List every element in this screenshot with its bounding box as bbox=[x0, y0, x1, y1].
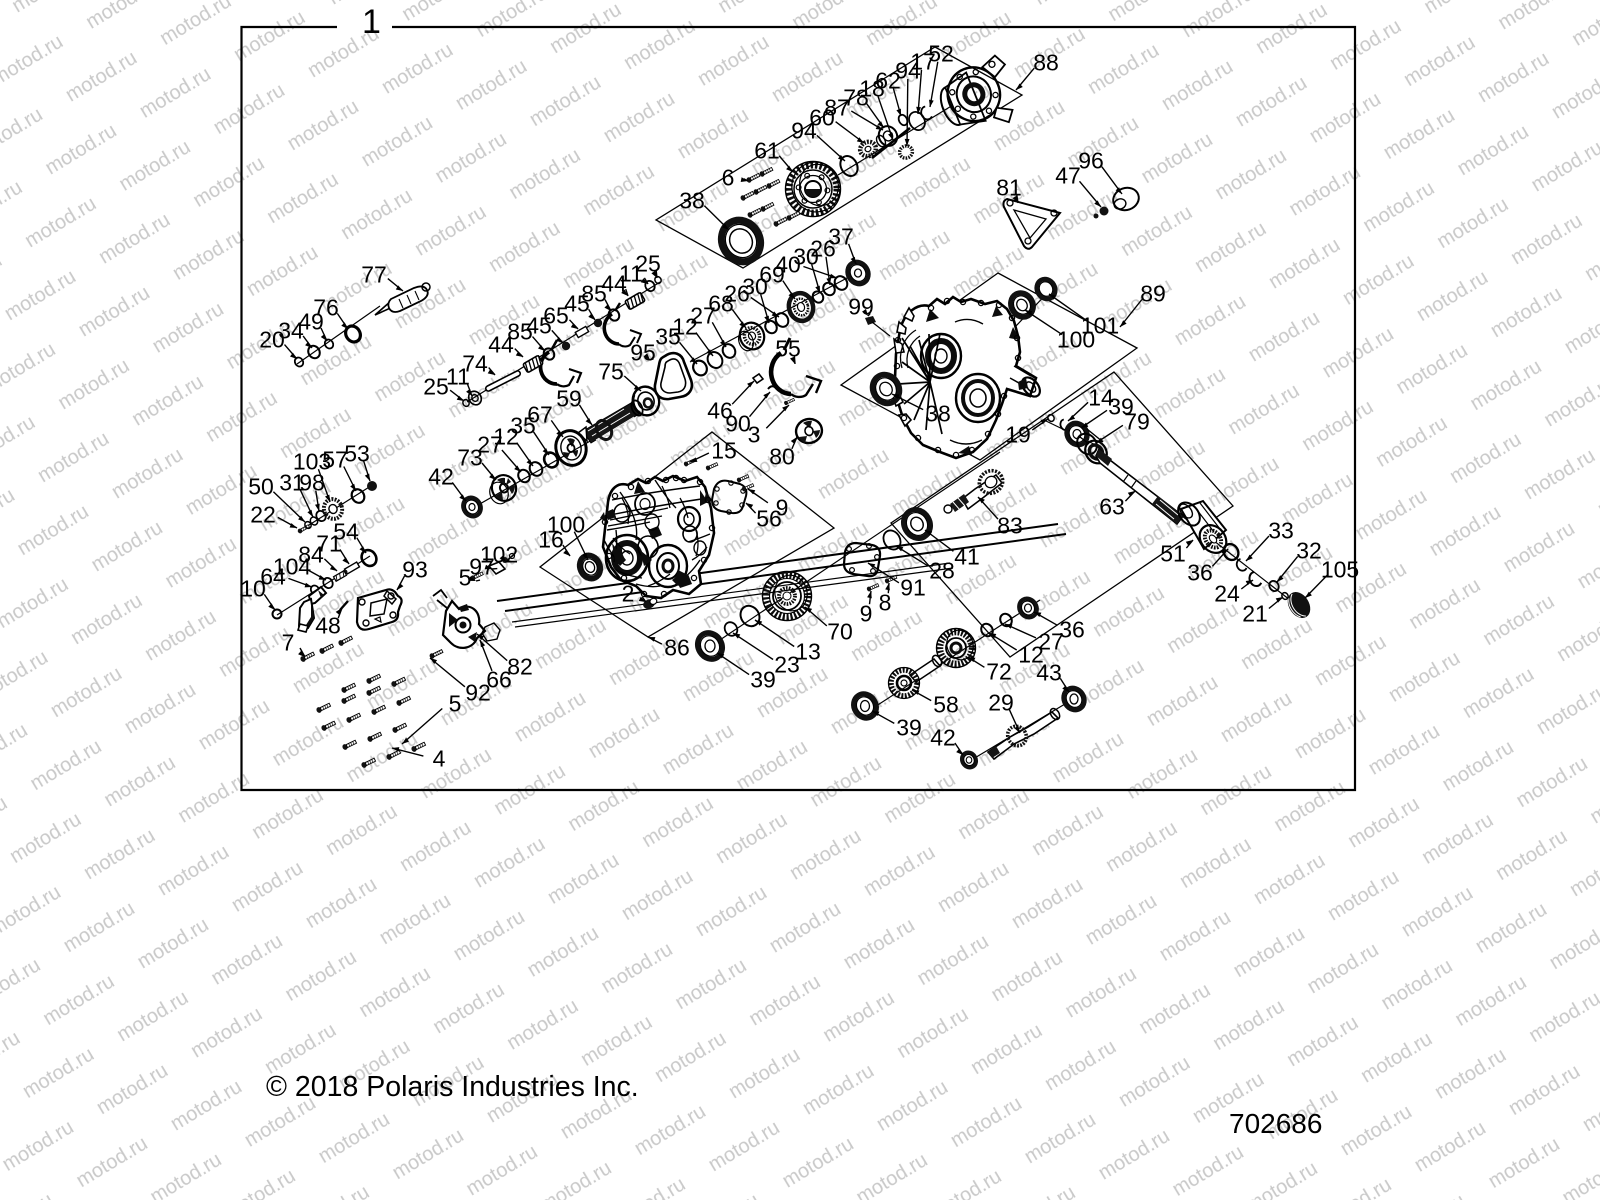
svg-text:83: 83 bbox=[997, 512, 1023, 538]
svg-text:36: 36 bbox=[1187, 559, 1213, 585]
svg-text:1: 1 bbox=[362, 3, 381, 41]
svg-text:42: 42 bbox=[930, 724, 956, 750]
svg-text:28: 28 bbox=[929, 557, 955, 583]
svg-text:© 2018 Polaris Industries Inc.: © 2018 Polaris Industries Inc. bbox=[266, 1071, 639, 1103]
svg-text:48: 48 bbox=[315, 612, 341, 638]
svg-text:74: 74 bbox=[462, 350, 488, 376]
svg-text:2: 2 bbox=[622, 580, 635, 606]
svg-text:702686: 702686 bbox=[1229, 1108, 1322, 1139]
svg-text:96: 96 bbox=[1078, 147, 1104, 173]
svg-text:104: 104 bbox=[273, 553, 312, 579]
svg-text:101: 101 bbox=[1081, 312, 1119, 338]
svg-text:89: 89 bbox=[1140, 280, 1166, 306]
svg-text:52: 52 bbox=[928, 40, 954, 66]
svg-text:102: 102 bbox=[480, 541, 518, 567]
svg-text:39: 39 bbox=[896, 714, 922, 740]
svg-text:47: 47 bbox=[1055, 162, 1081, 188]
svg-text:51: 51 bbox=[1160, 540, 1186, 566]
svg-text:15: 15 bbox=[711, 437, 737, 463]
svg-text:92: 92 bbox=[465, 679, 491, 705]
svg-text:61: 61 bbox=[754, 137, 780, 163]
svg-text:43: 43 bbox=[1036, 659, 1062, 685]
svg-text:75: 75 bbox=[598, 358, 624, 384]
svg-text:95: 95 bbox=[630, 339, 656, 365]
svg-text:25: 25 bbox=[423, 373, 449, 399]
svg-text:91: 91 bbox=[900, 574, 926, 600]
svg-text:6: 6 bbox=[722, 164, 735, 190]
svg-text:80: 80 bbox=[769, 443, 795, 469]
svg-text:81: 81 bbox=[996, 174, 1022, 200]
svg-text:100: 100 bbox=[547, 511, 585, 537]
svg-text:87: 87 bbox=[824, 94, 850, 120]
svg-text:93: 93 bbox=[402, 556, 428, 582]
svg-text:19: 19 bbox=[1005, 421, 1031, 447]
svg-text:85: 85 bbox=[581, 280, 607, 306]
svg-text:70: 70 bbox=[827, 618, 853, 644]
svg-text:94: 94 bbox=[791, 117, 817, 143]
svg-text:99: 99 bbox=[848, 293, 874, 319]
svg-text:37: 37 bbox=[828, 223, 854, 249]
svg-text:5: 5 bbox=[449, 690, 462, 716]
svg-text:85: 85 bbox=[507, 318, 533, 344]
svg-text:38: 38 bbox=[679, 187, 705, 213]
svg-text:72: 72 bbox=[986, 658, 1012, 684]
svg-text:38: 38 bbox=[925, 400, 951, 426]
svg-text:9: 9 bbox=[860, 600, 873, 626]
svg-text:32: 32 bbox=[1296, 537, 1322, 563]
svg-text:88: 88 bbox=[1033, 49, 1059, 75]
svg-text:86: 86 bbox=[664, 634, 690, 660]
svg-text:79: 79 bbox=[1124, 408, 1150, 434]
svg-text:41: 41 bbox=[954, 543, 980, 569]
svg-text:65: 65 bbox=[543, 302, 569, 328]
svg-text:73: 73 bbox=[457, 444, 483, 470]
svg-text:24: 24 bbox=[1214, 580, 1240, 606]
svg-text:33: 33 bbox=[1268, 517, 1294, 543]
svg-text:36: 36 bbox=[1059, 616, 1085, 642]
svg-text:35: 35 bbox=[655, 323, 681, 349]
svg-text:50: 50 bbox=[248, 473, 274, 499]
svg-text:21: 21 bbox=[1242, 600, 1268, 626]
svg-text:69: 69 bbox=[759, 261, 785, 287]
svg-text:58: 58 bbox=[933, 691, 959, 717]
svg-text:8: 8 bbox=[879, 589, 892, 615]
svg-text:63: 63 bbox=[1099, 493, 1125, 519]
svg-text:67: 67 bbox=[527, 401, 553, 427]
svg-text:90: 90 bbox=[725, 410, 751, 436]
svg-text:7: 7 bbox=[282, 629, 295, 655]
svg-text:103: 103 bbox=[293, 448, 331, 474]
svg-text:4: 4 bbox=[433, 745, 446, 771]
svg-text:77: 77 bbox=[361, 261, 387, 287]
svg-text:23: 23 bbox=[774, 651, 800, 677]
svg-text:56: 56 bbox=[756, 505, 782, 531]
svg-text:42: 42 bbox=[428, 463, 454, 489]
svg-text:105: 105 bbox=[1321, 556, 1359, 582]
svg-text:55: 55 bbox=[775, 335, 801, 361]
svg-text:22: 22 bbox=[250, 501, 276, 527]
svg-text:82: 82 bbox=[507, 653, 533, 679]
svg-text:59: 59 bbox=[556, 385, 582, 411]
svg-text:76: 76 bbox=[313, 294, 339, 320]
svg-text:39: 39 bbox=[750, 666, 776, 692]
svg-text:68: 68 bbox=[708, 290, 734, 316]
svg-text:53: 53 bbox=[344, 440, 370, 466]
